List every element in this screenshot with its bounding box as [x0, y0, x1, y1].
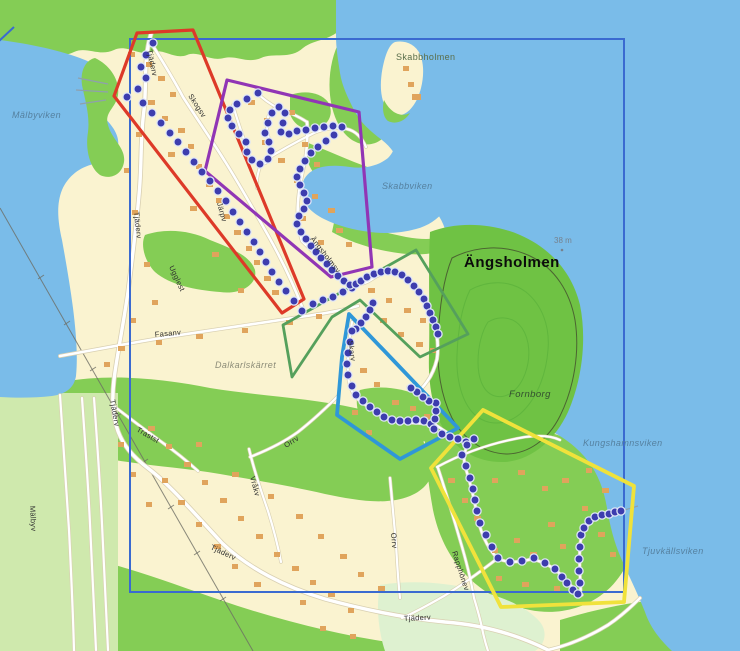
- trail-yellow-waypoint-dot: [462, 462, 470, 470]
- trail-yellow-waypoint-dot: [463, 441, 471, 449]
- trail-blue-waypoint-dot: [396, 417, 404, 425]
- trail-red-waypoint-dot: [329, 293, 337, 301]
- trail-red-waypoint-dot: [134, 85, 142, 93]
- elevation-point-marker: [561, 249, 564, 252]
- trail-blue-link-waypoint-dot: [438, 430, 446, 438]
- trail-yellow-waypoint-dot: [473, 507, 481, 515]
- trail-red-waypoint-dot: [182, 148, 190, 156]
- trail-yellow-waypoint-dot: [575, 567, 583, 575]
- trail-purple-waypoint-dot: [307, 149, 315, 157]
- trail-blue-waypoint-dot: [407, 384, 415, 392]
- trail-yellow-waypoint-dot: [576, 543, 584, 551]
- trail-red-waypoint-dot: [214, 187, 222, 195]
- trail-purple-waypoint-dot: [322, 137, 330, 145]
- trail-blue-waypoint-dot: [388, 416, 396, 424]
- trail-purple-waypoint-dot: [311, 124, 319, 132]
- trail-purple-waypoint-dot: [285, 130, 293, 138]
- trail-yellow-waypoint-dot: [541, 559, 549, 567]
- trail-red-waypoint-dot: [123, 93, 131, 101]
- trail-purple-waypoint-dot: [242, 138, 250, 146]
- trail-red-waypoint-dot: [148, 109, 156, 117]
- trail-red-waypoint-dot: [149, 39, 157, 47]
- trail-yellow-waypoint-dot: [471, 496, 479, 504]
- trail-red-waypoint-dot: [229, 208, 237, 216]
- trail-purple-waypoint-dot: [296, 181, 304, 189]
- trail-red-waypoint-dot: [282, 287, 290, 295]
- trail-blue-waypoint-dot: [380, 413, 388, 421]
- trail-red-waypoint-dot: [319, 296, 327, 304]
- trail-blue-waypoint-dot: [348, 327, 356, 335]
- trail-purple-waypoint-dot: [300, 189, 308, 197]
- trail-red-waypoint-dot: [222, 197, 230, 205]
- trail-blue-link-waypoint-dot: [430, 425, 438, 433]
- trail-yellow-waypoint-dot: [617, 507, 625, 515]
- trail-purple-waypoint-dot: [261, 129, 269, 137]
- trail-purple-waypoint-dot: [256, 160, 264, 168]
- trail-blue-waypoint-dot: [344, 349, 352, 357]
- trail-purple-waypoint-dot: [320, 123, 328, 131]
- trail-red-waypoint-dot: [250, 238, 258, 246]
- trail-blue-waypoint-dot: [352, 391, 360, 399]
- trail-purple-waypoint-dot: [264, 155, 272, 163]
- trail-red-waypoint-dot: [243, 228, 251, 236]
- map-viewport[interactable]: Mälbyviken Skabbviken Kungshamnsviken Tj…: [0, 0, 740, 651]
- trail-yellow-waypoint-dot: [530, 554, 538, 562]
- trail-purple-waypoint-dot: [314, 143, 322, 151]
- trail-blue-link-waypoint-dot: [454, 435, 462, 443]
- trail-red-waypoint-dot: [275, 278, 283, 286]
- trail-purple-waypoint-dot: [243, 148, 251, 156]
- trail-red-waypoint-dot: [166, 129, 174, 137]
- trail-blue-waypoint-dot: [412, 416, 420, 424]
- trail-purple-waypoint-dot: [295, 212, 303, 220]
- trail-purple-waypoint-dot: [254, 89, 262, 97]
- trail-red-waypoint-dot: [236, 218, 244, 226]
- trail-yellow-waypoint-dot: [575, 555, 583, 563]
- trail-blue-waypoint-dot: [343, 360, 351, 368]
- trail-purple-waypoint-dot: [233, 100, 241, 108]
- trail-red-waypoint-dot: [142, 51, 150, 59]
- trail-blue-waypoint-dot: [404, 417, 412, 425]
- trail-yellow-waypoint-dot: [470, 435, 478, 443]
- trail-blue-waypoint-dot: [359, 397, 367, 405]
- trail-yellow-waypoint-dot: [551, 565, 559, 573]
- trail-purple-waypoint-dot: [293, 220, 301, 228]
- trail-purple-waypoint-dot: [267, 147, 275, 155]
- trail-yellow-waypoint-dot: [469, 485, 477, 493]
- trail-purple-waypoint-dot: [224, 114, 232, 122]
- trail-red-waypoint-dot: [190, 158, 198, 166]
- trail-red-waypoint-dot: [137, 63, 145, 71]
- trail-red-waypoint-dot: [339, 288, 347, 296]
- trail-purple-waypoint-dot: [281, 109, 289, 117]
- trail-blue-waypoint-dot: [431, 415, 439, 423]
- trail-purple-waypoint-dot: [329, 122, 337, 130]
- trail-red-waypoint-dot: [268, 268, 276, 276]
- trail-blue-waypoint-dot: [344, 371, 352, 379]
- trail-purple-waypoint-dot: [293, 127, 301, 135]
- trail-blue-waypoint-dot: [432, 407, 440, 415]
- trail-purple-waypoint-dot: [330, 131, 338, 139]
- trail-purple-waypoint-dot: [248, 156, 256, 164]
- trail-purple-waypoint-dot: [243, 95, 251, 103]
- trail-yellow-waypoint-dot: [563, 579, 571, 587]
- trail-red-waypoint-dot: [198, 168, 206, 176]
- trail-purple-waypoint-dot: [296, 165, 304, 173]
- trail-yellow-waypoint-dot: [576, 579, 584, 587]
- trail-yellow-waypoint-dot: [466, 474, 474, 482]
- trail-yellow-waypoint-dot: [476, 519, 484, 527]
- trail-purple-waypoint-dot: [279, 119, 287, 127]
- trail-purple-waypoint-dot: [293, 173, 301, 181]
- trail-purple-waypoint-dot: [338, 123, 346, 131]
- trail-yellow-waypoint-dot: [574, 590, 582, 598]
- trail-yellow-waypoint-dot: [518, 557, 526, 565]
- trail-purple-waypoint-dot: [235, 130, 243, 138]
- trail-purple-waypoint-dot: [226, 106, 234, 114]
- trail-purple-waypoint-dot: [303, 197, 311, 205]
- trail-yellow-waypoint-dot: [494, 554, 502, 562]
- trail-purple-waypoint-dot: [265, 138, 273, 146]
- trail-purple-waypoint-dot: [277, 128, 285, 136]
- trail-red-waypoint-dot: [298, 307, 306, 315]
- trail-red-waypoint-dot: [139, 99, 147, 107]
- trail-blue-link-waypoint-dot: [446, 433, 454, 441]
- trail-blue-waypoint-dot: [346, 338, 354, 346]
- trail-yellow-waypoint-dot: [458, 451, 466, 459]
- trail-red-waypoint-dot: [206, 177, 214, 185]
- trail-red-waypoint-dot: [256, 248, 264, 256]
- map-canvas[interactable]: Mälbyviken Skabbviken Kungshamnsviken Tj…: [0, 0, 740, 651]
- trail-purple-waypoint-dot: [302, 126, 310, 134]
- trail-yellow-waypoint-dot: [506, 558, 514, 566]
- trail-red-waypoint-dot: [309, 300, 317, 308]
- trail-purple-waypoint-dot: [301, 157, 309, 165]
- trail-green-waypoint-dot: [434, 330, 442, 338]
- trail-red-waypoint-dot: [290, 297, 298, 305]
- trail-red-waypoint-dot: [157, 119, 165, 127]
- trail-purple-waypoint-dot: [228, 122, 236, 130]
- trail-blue-waypoint-dot: [348, 382, 356, 390]
- trail-red-waypoint-dot: [142, 74, 150, 82]
- trail-purple-waypoint-dot: [268, 109, 276, 117]
- trail-yellow-waypoint-dot: [488, 543, 496, 551]
- trail-red-waypoint-dot: [262, 258, 270, 266]
- trail-red-waypoint-dot: [174, 138, 182, 146]
- trail-yellow-waypoint-dot: [482, 531, 490, 539]
- trail-purple-waypoint-dot: [264, 119, 272, 127]
